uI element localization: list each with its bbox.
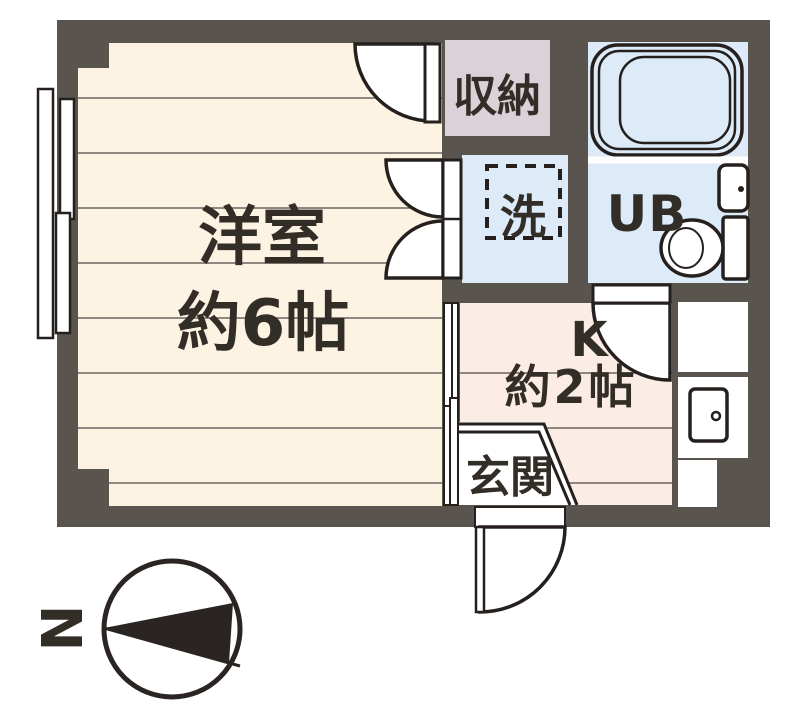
wall-step-top-left	[78, 43, 109, 68]
compass-icon: N	[31, 561, 240, 697]
sliding-partition-icon	[444, 303, 458, 505]
laundry-label: 洗	[500, 190, 546, 244]
compass-north-label: N	[31, 605, 96, 652]
western-room-size-label: 約6帖	[177, 287, 350, 361]
unit-bath-label: UB	[607, 185, 688, 243]
storage-label: 収納	[453, 71, 541, 122]
sliding-window-icon	[38, 89, 74, 338]
window-pane-upper	[60, 99, 74, 219]
utility-alcove-top	[678, 302, 748, 372]
sink-icon	[719, 165, 748, 211]
wall-step-bottom-left	[78, 469, 109, 506]
floor-plan-svg: 洋室 約6帖 収納 洗 UB K 約2帖 玄関 N	[0, 0, 800, 725]
window-pane-lower	[56, 213, 70, 333]
entrance-door-leaf	[476, 527, 484, 612]
bathtub-icon	[592, 45, 742, 155]
partition-pane-upper	[444, 303, 452, 406]
entrance-label: 玄関	[466, 452, 554, 503]
entrance-threshold	[475, 507, 565, 527]
window-outer-frame	[38, 89, 53, 338]
floor-plan-page: 洋室 約6帖 収納 洗 UB K 約2帖 玄関 N	[0, 0, 800, 725]
partition-pane-lower	[450, 398, 458, 505]
entrance-door-swing-icon	[480, 527, 565, 612]
utility-alcove-bottom	[678, 460, 717, 507]
closet-door-leaf	[425, 44, 440, 122]
utility-door-icon	[690, 389, 727, 441]
western-room-label: 洋室	[198, 201, 326, 275]
bath-door-leaf	[593, 285, 670, 303]
kitchen-size-label: 約2帖	[504, 360, 637, 414]
